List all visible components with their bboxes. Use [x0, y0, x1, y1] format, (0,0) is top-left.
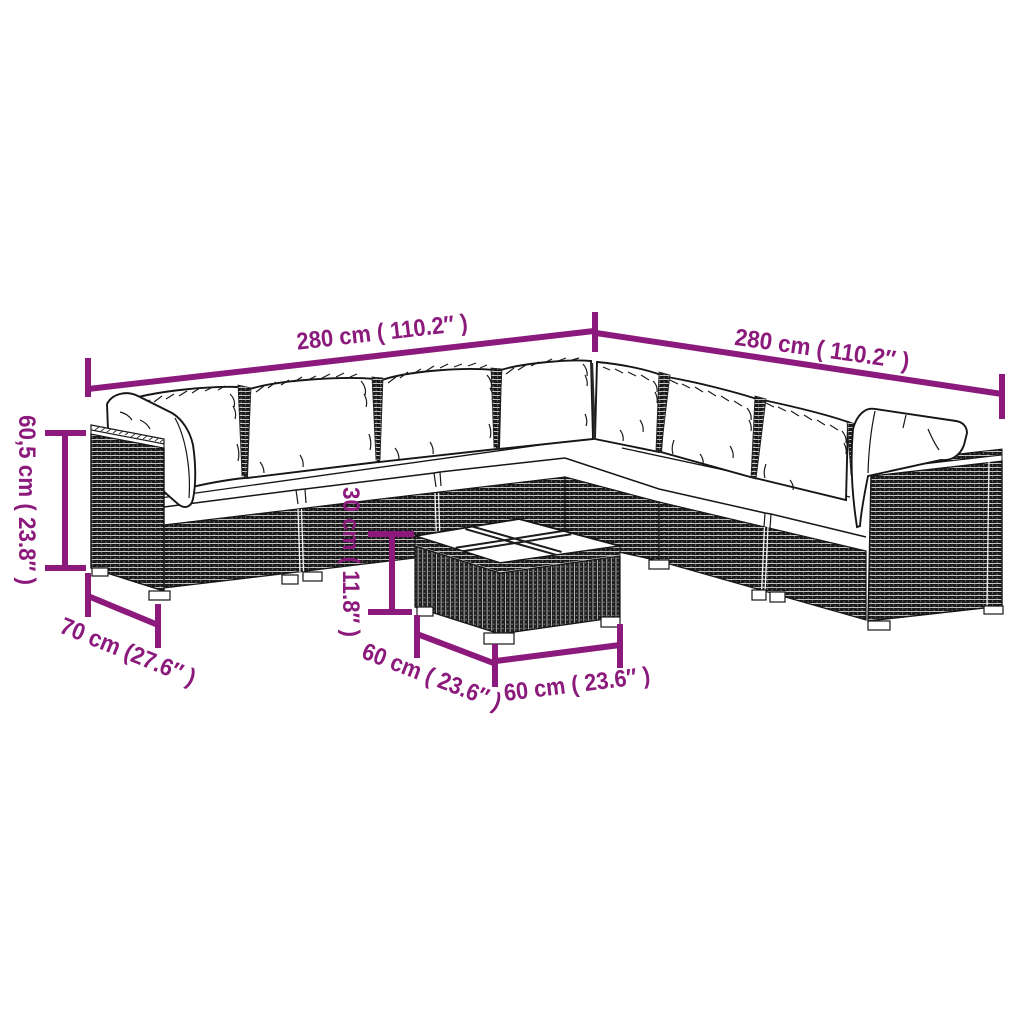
svg-text:60,5 cm ( 23.8″ ): 60,5 cm ( 23.8″ ) [13, 415, 40, 585]
svg-text:30 cm ( 11.8″ ): 30 cm ( 11.8″ ) [337, 487, 364, 637]
